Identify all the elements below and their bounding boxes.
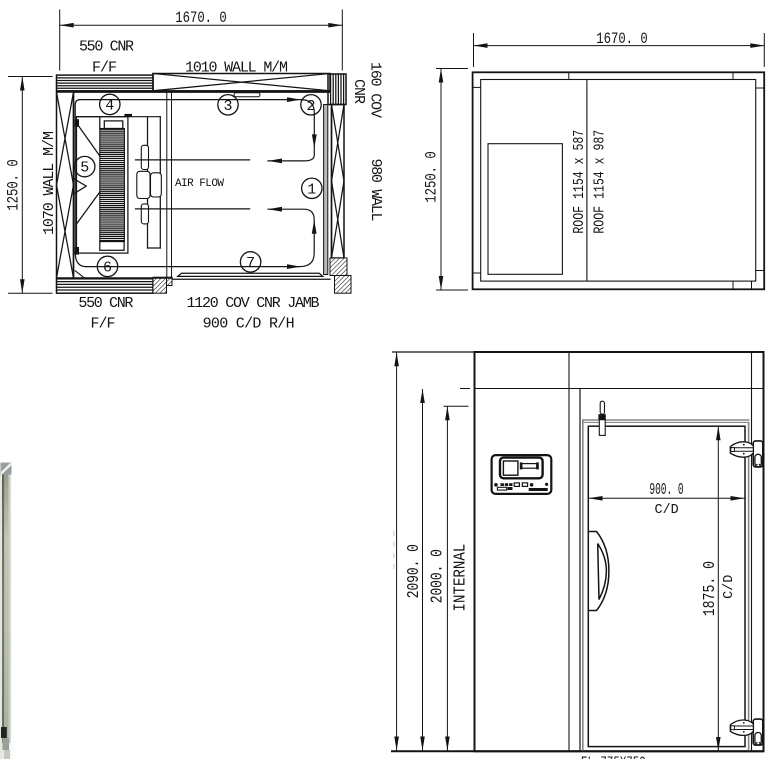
svg-text:2090. 0: 2090. 0: [403, 544, 423, 598]
svg-text:900. 0: 900. 0: [649, 482, 683, 501]
svg-text:ROOF 1154 x 987: ROOF 1154 x 987: [592, 130, 609, 234]
svg-text:1010 WALL M/M: 1010 WALL M/M: [185, 60, 288, 77]
svg-text:1670. 0: 1670. 0: [175, 9, 226, 27]
svg-text:900 C/D R/H: 900 C/D R/H: [203, 316, 295, 333]
svg-text:5: 5: [80, 160, 89, 177]
svg-text:EL 775X750: EL 775X750: [581, 754, 646, 759]
svg-text:1250. 0: 1250. 0: [423, 151, 441, 202]
svg-text:550 CNR: 550 CNR: [79, 39, 134, 56]
svg-text:550 CNR: 550 CNR: [78, 295, 133, 312]
svg-text:980 WALL: 980 WALL: [367, 159, 384, 222]
svg-text:3: 3: [223, 98, 232, 115]
svg-text:F/F: F/F: [91, 316, 116, 333]
svg-text:INTERNAL: INTERNAL: [450, 544, 470, 612]
svg-text:C/D: C/D: [721, 575, 737, 599]
svg-text:1070 WALL M/M: 1070 WALL M/M: [41, 131, 58, 235]
svg-text:7: 7: [246, 255, 255, 272]
svg-text:ROOF 1154 x 587: ROOF 1154 x 587: [572, 130, 589, 234]
svg-text:1250. 0: 1250. 0: [5, 159, 23, 210]
svg-text:6: 6: [103, 259, 112, 276]
svg-text:4: 4: [105, 97, 114, 114]
svg-text:2000. 0: 2000. 0: [427, 549, 447, 603]
svg-text:160 COV: 160 COV: [366, 62, 383, 118]
svg-text:C/D: C/D: [655, 502, 679, 518]
svg-text:1875. 0: 1875. 0: [699, 561, 719, 616]
svg-text:AIR FLOW: AIR FLOW: [175, 178, 224, 190]
svg-text:2: 2: [306, 98, 315, 115]
svg-text:CNR: CNR: [350, 79, 367, 104]
svg-text:1670. 0: 1670. 0: [596, 31, 647, 49]
svg-text:1120 COV CNR JAMB: 1120 COV CNR JAMB: [187, 295, 320, 312]
svg-text:1: 1: [307, 181, 316, 198]
svg-text:F/F: F/F: [92, 60, 117, 77]
